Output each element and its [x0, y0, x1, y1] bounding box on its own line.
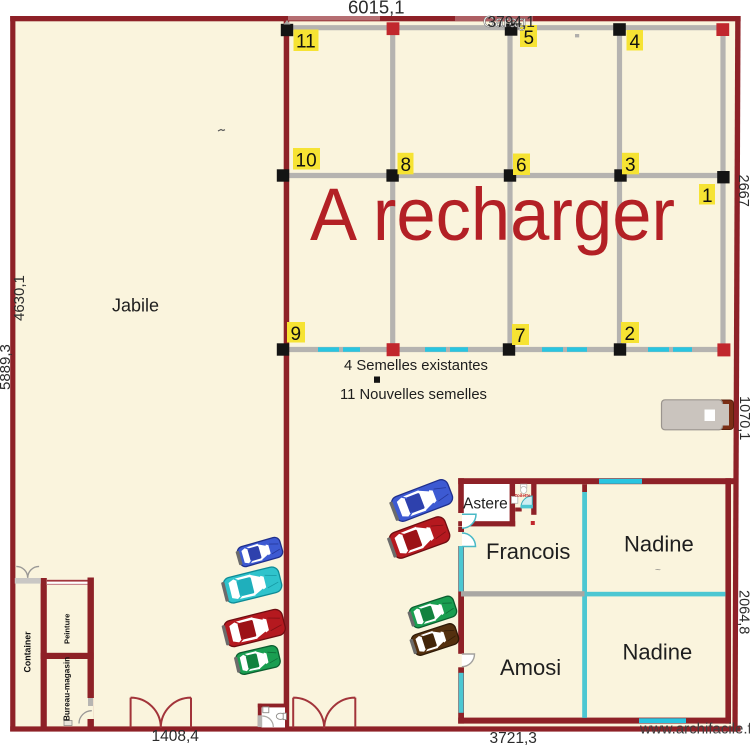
svg-text:3721,3: 3721,3: [490, 730, 537, 747]
svg-text:11 Nouvelles semelles: 11 Nouvelles semelles: [340, 387, 487, 403]
svg-text:Jabile: Jabile: [112, 296, 159, 316]
svg-text:Francois: Francois: [486, 539, 570, 564]
svg-text:1070,1: 1070,1: [736, 396, 750, 440]
svg-text:www.archifacile.fr: www.archifacile.fr: [639, 721, 750, 738]
svg-text:7: 7: [515, 326, 526, 347]
svg-text:4: 4: [630, 32, 641, 53]
svg-text:2064,8: 2064,8: [736, 590, 750, 634]
svg-text:1: 1: [702, 186, 713, 207]
svg-text:4 Semelles existantes: 4 Semelles existantes: [344, 358, 488, 374]
svg-text:9: 9: [291, 324, 302, 345]
svg-text:A recharger: A recharger: [310, 173, 675, 256]
svg-text:6015,1: 6015,1: [348, 0, 405, 18]
svg-text:Peinture: Peinture: [63, 614, 72, 644]
svg-text:~: ~: [655, 565, 661, 576]
svg-text:11: 11: [296, 32, 316, 53]
svg-text:Nadine: Nadine: [623, 640, 693, 665]
svg-text:10: 10: [296, 151, 317, 172]
svg-text:Astere: Astere: [463, 496, 508, 513]
svg-text:Amosi: Amosi: [500, 655, 561, 680]
svg-text:2: 2: [625, 324, 636, 345]
svg-text:4630,1: 4630,1: [11, 275, 28, 321]
svg-text:1408,4: 1408,4: [152, 728, 200, 745]
svg-text:Container: Container: [23, 631, 33, 673]
svg-text:Bureau-magasin: Bureau-magasin: [63, 657, 72, 721]
svg-text:3794,1: 3794,1: [488, 14, 535, 31]
svg-text:Nadine: Nadine: [624, 532, 694, 557]
svg-text:5889,3: 5889,3: [0, 344, 14, 390]
svg-text:2667: 2667: [735, 175, 750, 207]
svg-text:Toilette: Toilette: [515, 493, 531, 498]
